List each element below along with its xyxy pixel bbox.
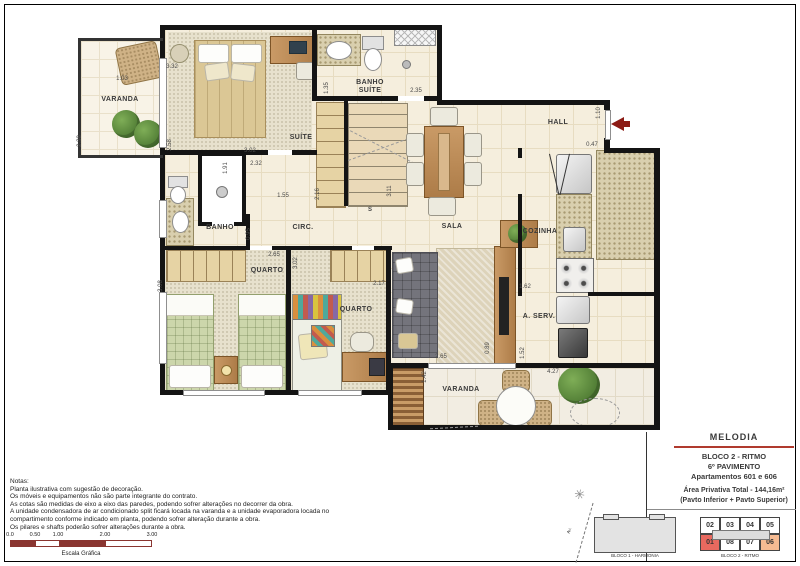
laundry-tank (556, 296, 590, 324)
kitchen-counter-right (596, 150, 656, 260)
dining-chair (428, 197, 456, 216)
door-opening (250, 246, 272, 250)
wall (344, 100, 348, 206)
tree-outline (570, 398, 620, 428)
notes-lines: Planta ilustrativa com sugestão de decor… (10, 486, 329, 532)
stove (556, 258, 594, 293)
quarto1-bed (166, 294, 214, 392)
plant (134, 120, 162, 148)
ac-condenser-louver (392, 368, 424, 426)
room-label-quarto2: QUARTO (340, 306, 373, 314)
dining-chair (406, 133, 424, 157)
dimension-label: 1.42 (422, 371, 428, 383)
stair-direction-label: S (368, 207, 372, 213)
dimension-label: 1.10 (596, 107, 602, 119)
wall (654, 148, 660, 430)
wall (437, 100, 609, 105)
dimension-label: 2.16 (315, 188, 321, 200)
wall (437, 25, 442, 105)
scale-tick-label: 0.50 (30, 532, 41, 538)
note-line: Planta ilustrativa com sugestão de decor… (10, 486, 329, 494)
dimension-label: 1.03 (116, 76, 128, 82)
area-line: Área Privativa Total - 144,16m² (683, 487, 784, 494)
note-line: compartimento conforme indicado em plant… (10, 516, 329, 524)
room-label-aserv: A. SERV. (523, 313, 555, 321)
dimension-label: 2.38 (77, 135, 83, 147)
quarto2-chair (350, 332, 374, 352)
sofa (392, 252, 438, 358)
dining-chair (464, 133, 482, 157)
tv-panel (494, 246, 516, 364)
wall (588, 292, 654, 296)
wall (386, 246, 391, 394)
patio-table (496, 386, 536, 426)
floor-plan-sheet: VARANDA SUÍTE BANHO SUÍTE HALL SALA COZI… (0, 0, 800, 566)
dimension-label: 1.52 (520, 347, 526, 359)
room-label-varanda-bottom: VARANDA (442, 386, 479, 394)
door-opening (398, 96, 424, 101)
shaft-hatch (394, 28, 436, 46)
room-label-banho: BANHO (206, 224, 234, 232)
entrance-arrow-tail (624, 121, 630, 127)
dimension-label: 3.02 (244, 148, 256, 154)
scale-tick-label: 3.00 (147, 532, 158, 538)
dimension-label: 0.95 (246, 228, 252, 240)
room-label-suite: SUÍTE (290, 134, 313, 142)
keyplan-bloco2-label: BLOCO 2 - RITMO (721, 553, 759, 558)
toilet-bowl (364, 48, 382, 71)
keyplan-bloco1-building (594, 517, 676, 553)
apartments-line: Apartamentos 601 e 606 (691, 472, 777, 481)
dimension-label: 2.65 (435, 354, 447, 360)
door-opening (268, 150, 292, 155)
quarto2-wardrobe (330, 250, 388, 282)
quarto2-bed (292, 294, 342, 392)
dimension-label: 3.11 (387, 185, 393, 196)
dimension-label: 3.02 (293, 257, 299, 269)
dimension-label: 2.35 (410, 88, 422, 94)
dining-chair (464, 162, 482, 186)
wall (518, 148, 522, 158)
room-label-sala: SALA (442, 223, 463, 231)
notes-title: Notas: (10, 478, 329, 486)
scale-tick-label: 2.00 (100, 532, 111, 538)
dimension-label: 3.32 (166, 64, 178, 70)
area-sub-line: (Pavto Inferior + Pavto Superior) (680, 497, 788, 504)
floor-line: 6º PAVIMENTO (708, 462, 760, 471)
entrance-arrow-icon (611, 117, 624, 131)
room-label-quarto1: QUARTO (251, 267, 284, 275)
wall (388, 425, 660, 430)
room-label-varanda-top: VARANDA (101, 96, 138, 104)
dining-table (424, 126, 464, 198)
wall (386, 363, 658, 368)
note-line: As cotas são medidas de eixo a eixo das … (10, 501, 329, 509)
dimension-label: 1.62 (519, 284, 531, 290)
room-label-cozinha: COZINHA (523, 228, 558, 236)
kitchen-counter-left (556, 194, 592, 260)
room-label-circ: CIRC. (292, 224, 313, 232)
dimension-label: 1.35 (324, 82, 330, 94)
quarto1-wardrobe (166, 250, 246, 282)
wall (518, 194, 522, 296)
project-title: MELODIA (710, 432, 759, 442)
notes-block: Notas: Planta ilustrativa com sugestão d… (10, 478, 329, 531)
shower-head-icon (402, 60, 411, 69)
dimension-label: 2.17 (373, 281, 385, 287)
door-opening (352, 246, 374, 250)
suite-side-table (170, 44, 189, 63)
nightstand (214, 356, 238, 384)
dining-chair (430, 107, 458, 126)
scale-caption: Escala Gráfica (61, 551, 100, 557)
dimension-label: 2.58 (167, 139, 173, 151)
title-separator (647, 509, 796, 510)
suite-double-bed (194, 40, 266, 138)
note-line: Os pilares e shafts poderão sofrer alter… (10, 524, 329, 532)
window (298, 390, 362, 396)
keyplan-bloco1-label: BLOCO 1 - HARMONIA (611, 553, 659, 558)
dimension-label: 0.89 (485, 342, 491, 354)
note-line: Os móveis e equipamentos não são parte i… (10, 493, 329, 501)
window (183, 390, 265, 396)
toilet-bowl (170, 186, 186, 204)
room-label-hall: HALL (548, 119, 568, 127)
quarto2-desk (342, 352, 388, 382)
dimension-label: 2.32 (250, 161, 262, 167)
block-line: BLOCO 2 - RITMO (702, 452, 766, 461)
dimension-label: 4.27 (547, 369, 559, 375)
wall (604, 100, 610, 110)
outside-area (442, 24, 656, 100)
washing-machine (558, 328, 588, 358)
keyplan-corridor (712, 530, 770, 540)
balcony-wall (78, 38, 163, 41)
dining-chair (406, 162, 424, 186)
wall (286, 246, 291, 394)
title-underline (674, 446, 794, 448)
wall (604, 148, 660, 153)
scale-tick-label: 1.00 (53, 532, 64, 538)
quarto1-bed (238, 294, 286, 392)
wall (160, 25, 442, 30)
room-label-banho-suite: BANHO SUÍTE (347, 79, 393, 95)
wall (312, 25, 317, 100)
dimension-label: 1.55 (277, 193, 289, 199)
balcony-wall (78, 155, 163, 158)
dimension-label: 1.91 (223, 162, 229, 174)
scale-tick-label: 0.0 (6, 532, 14, 538)
shower-box (198, 152, 246, 226)
sliding-door (428, 363, 516, 369)
dimension-label: 0.47 (586, 142, 598, 148)
bath-counter (166, 198, 194, 246)
bath-suite-counter (317, 34, 361, 66)
window (159, 58, 167, 148)
window (159, 292, 167, 364)
dimension-label: 3.08 (158, 280, 164, 292)
outside-area (163, 395, 388, 426)
dimension-label: 2.65 (268, 252, 280, 258)
scale-bar-track (10, 540, 152, 547)
note-line: A unidade condensadora de ar condicionad… (10, 508, 329, 516)
window (159, 200, 167, 238)
